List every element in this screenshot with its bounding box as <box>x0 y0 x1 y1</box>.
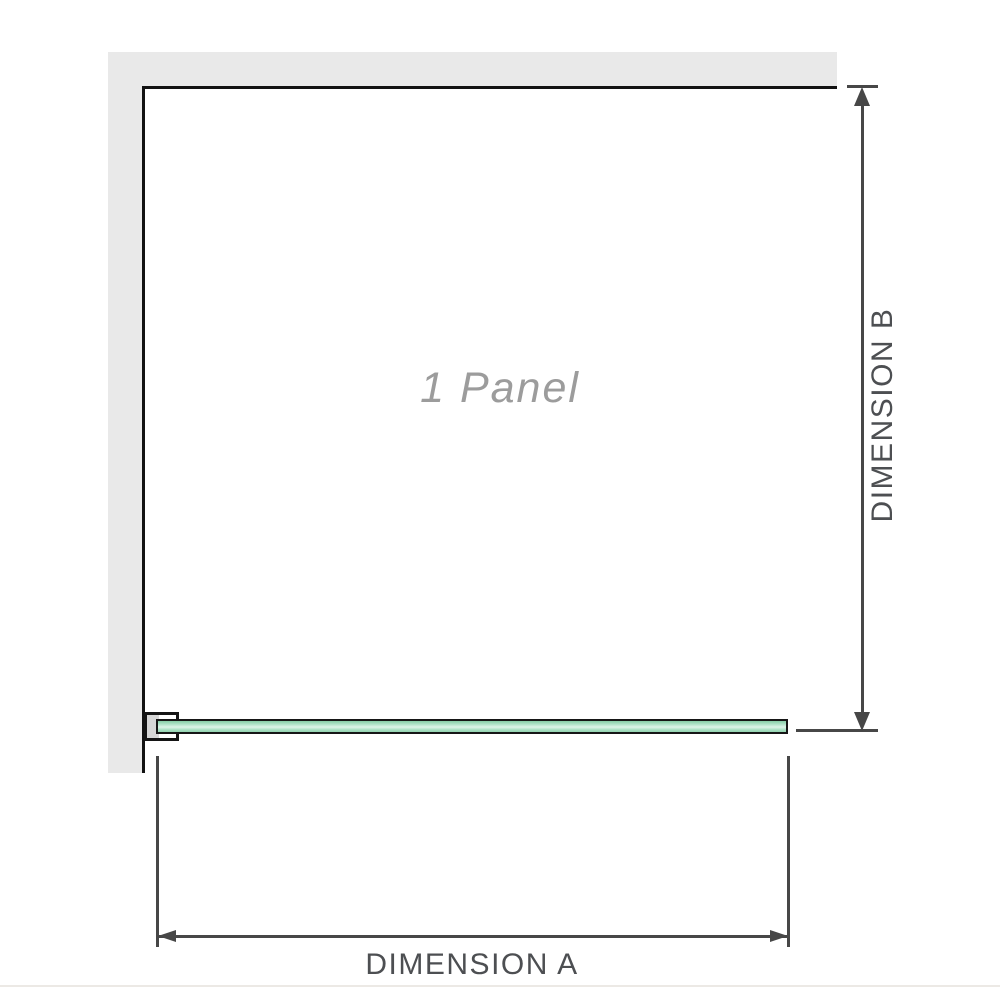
wall-top <box>108 52 837 86</box>
shower-screen-panel-diagram: 1 Panel DIMENSION B DIMENSION A <box>0 0 1000 1000</box>
panel-frame-top-line <box>142 86 837 89</box>
panel-count-label: 1 Panel <box>350 364 650 413</box>
dimension-a-extension-right <box>787 756 790 947</box>
dimension-a-arrowhead-right-icon <box>770 930 788 942</box>
dimension-a-label: DIMENSION A <box>322 948 622 982</box>
dimension-b-arrowhead-top-icon <box>854 87 870 106</box>
dimension-b-arrowhead-bottom-icon <box>854 712 870 731</box>
dimension-a-arrowhead-left-icon <box>158 930 176 942</box>
dimension-b-line <box>861 92 864 717</box>
wall-left <box>108 52 143 773</box>
dimension-b-label: DIMENSION B <box>866 305 900 525</box>
bottom-divider-line <box>0 985 1000 987</box>
glass-panel <box>156 719 788 734</box>
dimension-a-extension-left <box>156 756 159 947</box>
dimension-a-line <box>159 935 787 938</box>
panel-frame-left-line <box>142 86 145 773</box>
